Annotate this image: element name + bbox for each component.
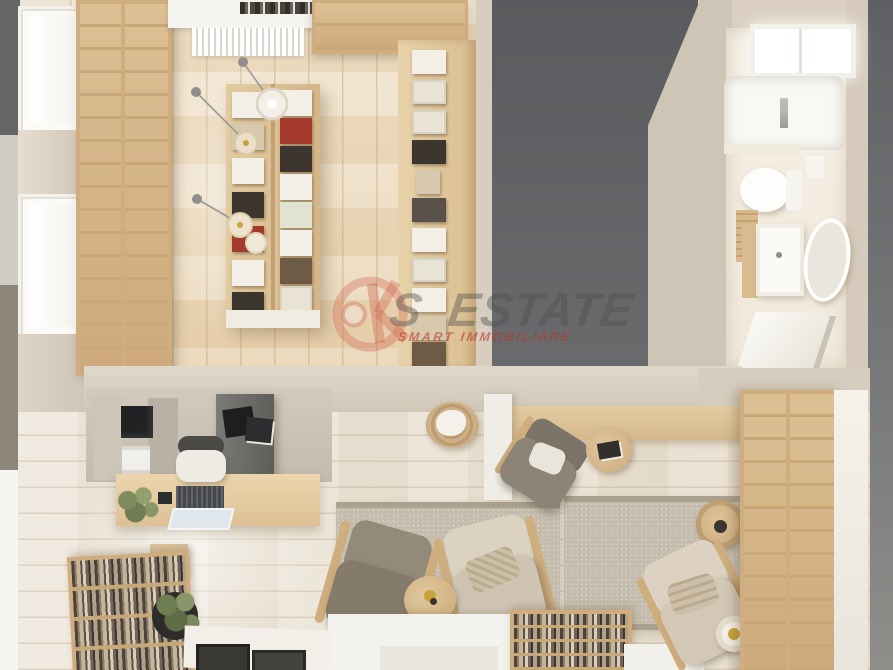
apartment-top-view-render: SESTATE SMART IMMOBILIARE (0, 0, 893, 670)
sink-faucet (776, 252, 782, 258)
books-stack (245, 417, 273, 444)
desk-plant (112, 482, 164, 528)
lamp-bulb (728, 628, 740, 640)
white-coffee-table (328, 614, 516, 670)
printer (122, 446, 150, 474)
book-cover (412, 342, 446, 366)
book-spines (744, 394, 838, 670)
rattan-basket (426, 402, 478, 448)
laptop-screen (167, 508, 234, 530)
outer-wall-edge (0, 0, 20, 135)
vanity-sink (756, 224, 804, 296)
book-on-table (597, 440, 621, 460)
white-wall-strip (834, 390, 868, 670)
toilet-tank (786, 170, 802, 210)
wall-panel (93, 396, 123, 480)
outer-wall-edge (0, 470, 20, 670)
bath-shelf (724, 144, 800, 154)
island-base (226, 310, 320, 328)
outer-wall-edge (0, 285, 20, 470)
bathroom-skylight (750, 24, 856, 78)
picture-frame (196, 644, 250, 670)
blanket (436, 410, 466, 436)
office-chair (176, 450, 226, 482)
round-side-table (586, 428, 632, 472)
laptop-keyboard (176, 486, 224, 508)
flush-plate (806, 156, 824, 178)
outer-wall-edge (0, 135, 20, 285)
table-bowl (430, 598, 437, 605)
watermark-main: ESTATE (445, 283, 637, 336)
outer-wall-edge (868, 0, 893, 670)
book-spines (514, 614, 628, 670)
table-inner (380, 646, 498, 670)
skylight-mullion (799, 29, 802, 73)
low-bookshelf (510, 610, 632, 670)
pendant-lamps (60, 0, 500, 300)
wall-box-shelf (121, 406, 153, 438)
picture-frame (252, 650, 306, 670)
watermark-prefix: S (387, 283, 427, 336)
right-wall-bookshelf (740, 390, 842, 670)
toilet (740, 168, 790, 212)
shelf-divider (786, 394, 790, 670)
bathtub-faucet (780, 98, 788, 128)
watermark-tagline: SMART IMMOBILIARE (397, 330, 619, 344)
